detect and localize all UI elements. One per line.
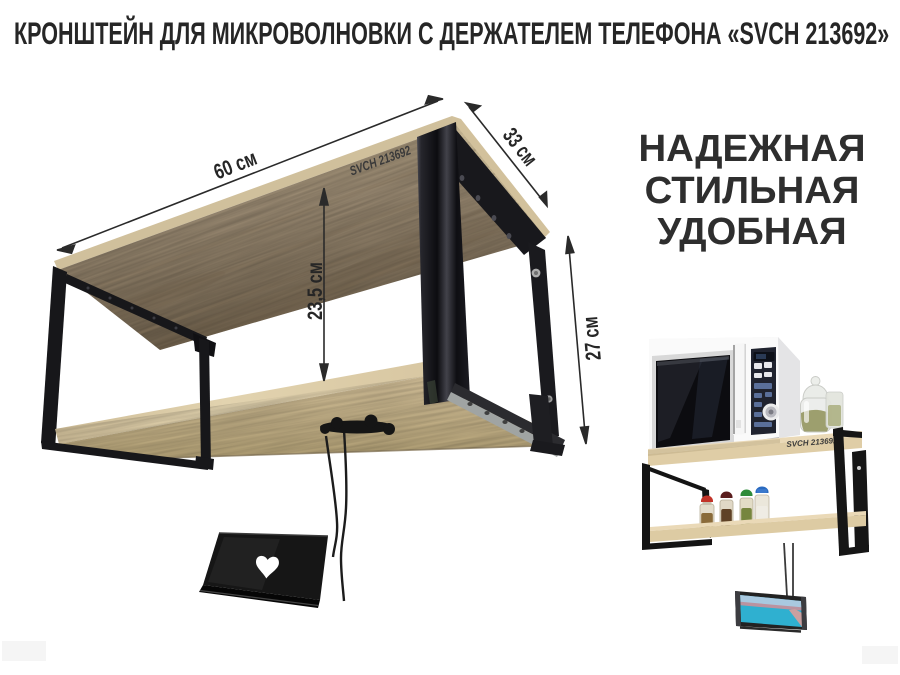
svg-text:33 см: 33 см [498,123,542,170]
svg-text:60 см: 60 см [210,146,260,184]
svg-text:27 см: 27 см [578,315,606,361]
svg-text:23,5 см: 23,5 см [303,262,327,320]
